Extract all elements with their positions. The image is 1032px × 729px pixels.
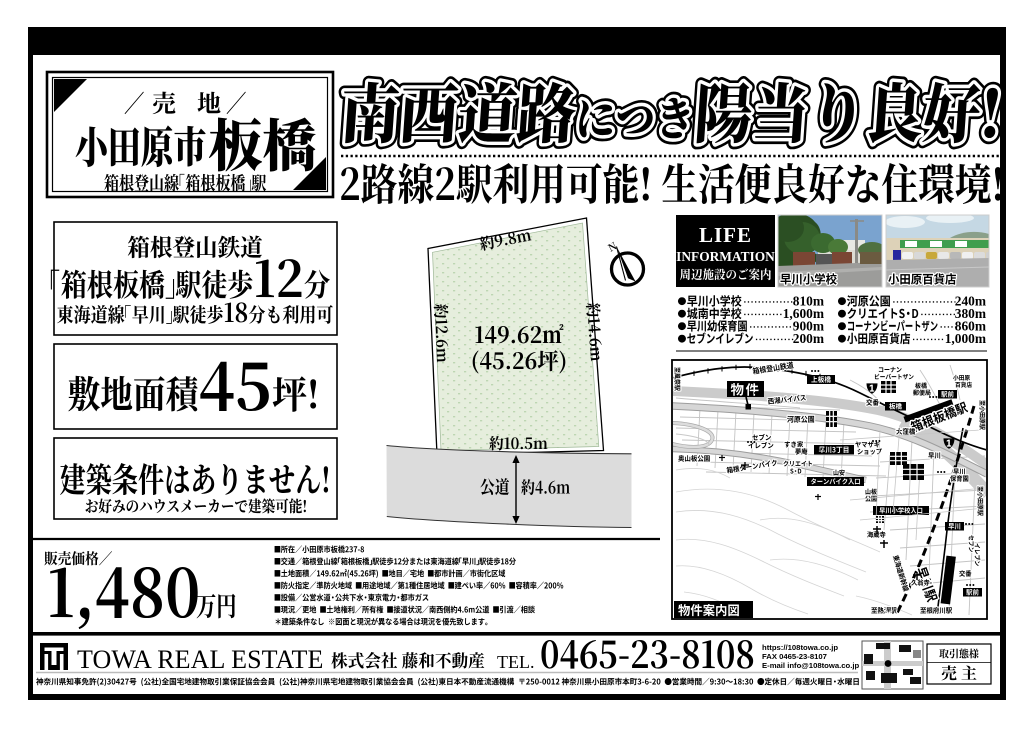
svg-text:1,000m: 1,000m (945, 331, 986, 346)
svg-text:TEL.: TEL. (497, 652, 535, 672)
svg-text:TOWA REAL ESTATE: TOWA REAL ESTATE (77, 645, 324, 674)
svg-text:FAX 0465-23-8107: FAX 0465-23-8107 (762, 652, 827, 661)
svg-text:200m: 200m (793, 331, 824, 346)
svg-text:E-mail info@108towa.co.jp: E-mail info@108towa.co.jp (762, 661, 860, 670)
svg-text:INFORMATION: INFORMATION (676, 249, 775, 264)
svg-text:https://108towa.co.jp: https://108towa.co.jp (762, 643, 838, 652)
svg-text:LIFE: LIFE (699, 223, 752, 247)
